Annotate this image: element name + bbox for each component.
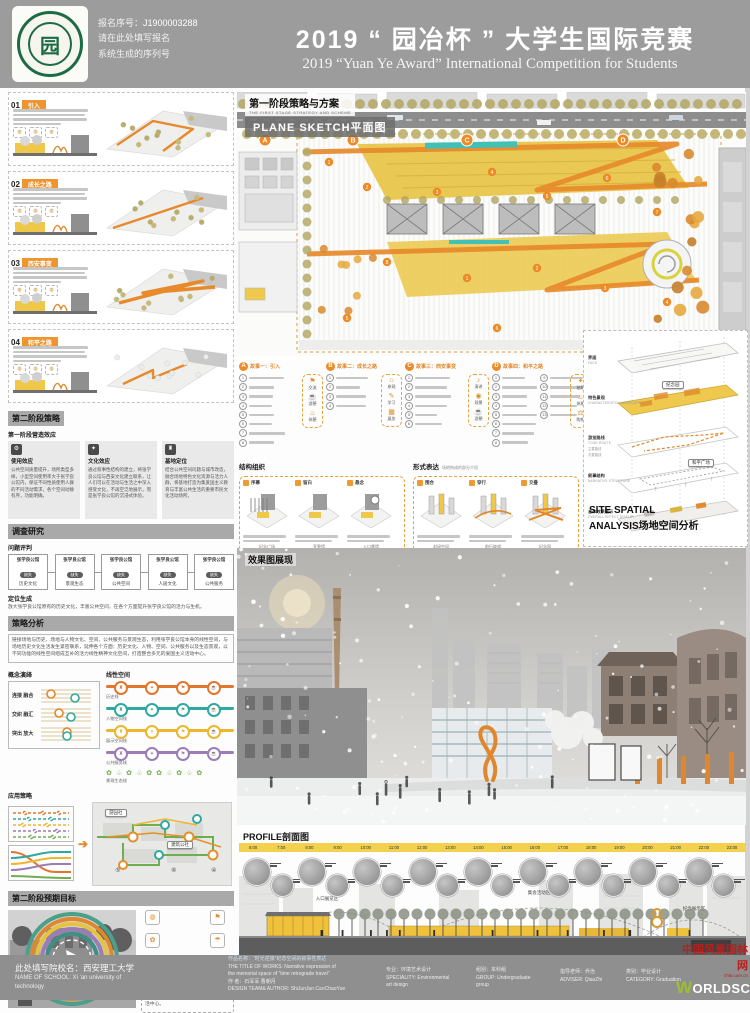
survey-node-aspect: 景观生态	[57, 581, 93, 587]
concept-row: 连接 融合	[12, 688, 96, 704]
story-list-item: 6	[239, 420, 285, 428]
icon-label: 学习	[383, 400, 400, 406]
effect-card: ♜基地定位结合公共空间问题与城市改造，融合场地特色文化资源与活力人群，将基地打造…	[162, 441, 234, 519]
logo-emblem-icon: 园	[17, 11, 83, 77]
svg-text:B: B	[350, 137, 355, 144]
icon-label: 参观	[383, 384, 400, 390]
card-text: 通过叙事性结构的建立，将张学良公馆与西安文化建立联系，让人们可以在活动与生活之中…	[88, 467, 154, 500]
activity-photo	[602, 874, 625, 897]
school-name-en2: technology	[15, 983, 215, 992]
survey-node: 张学良公馆缺失历史文化	[8, 554, 48, 590]
hour-tick: 14:00	[464, 843, 492, 852]
hour-tick: 11:00	[380, 843, 408, 852]
visit-icon: ⌂	[383, 377, 400, 384]
hour-tick: 20:00	[633, 843, 661, 852]
map-callout-1: 游园社	[105, 809, 127, 817]
story-list-item: 2	[239, 383, 285, 391]
card-title: 使用效应	[11, 457, 77, 465]
linear-block: 线性空间 ♜✦⚑☕历史线♜✦⚑☕人物空间线♜✦⚑☕展示空间线♜✦⚑☕公共服务线✿…	[106, 666, 234, 787]
specialty-en2: art design	[386, 982, 472, 990]
activity-photo	[629, 858, 657, 886]
perspective-render	[237, 548, 746, 825]
activity-photo	[657, 874, 680, 897]
story-list-item: 1	[239, 374, 285, 382]
survey-bar: 调查研究	[8, 524, 234, 539]
svg-text:4: 4	[666, 300, 669, 306]
poster-subtitle: 2019 “Yuan Ye Award” International Compe…	[240, 56, 740, 73]
line-node-icon: ☕	[207, 703, 221, 717]
strategy-text: 链接场地与历史、场地与人物文化、空间、公共服务与景观生态，利用张学良公馆本身的线…	[12, 638, 230, 659]
profile-photo-row	[239, 856, 746, 908]
form-box: 围合封闭空间	[417, 480, 465, 550]
activity-photo	[547, 874, 570, 897]
activity-label	[380, 862, 391, 868]
plane-sketch-chip: PLANE SKETCH平面图	[245, 117, 395, 137]
linear-lines: ♜✦⚑☕历史线♜✦⚑☕人物空间线♜✦⚑☕展示空间线♜✦⚑☕公共服务线✿♧✿♧✿✿…	[106, 681, 234, 784]
survey-node-aspect: 公共服务	[196, 581, 232, 587]
activity-photo	[271, 874, 294, 897]
svg-text:1: 1	[466, 276, 469, 282]
header-band: 园 报名序号：J1900003288 请在此处填写报名 系统生成的序列号 201…	[0, 0, 750, 88]
story-list-A: A故事一：引入12345678⚑交流☕游憩♨休憩	[239, 362, 323, 454]
hour-tick: 21:00	[662, 843, 690, 852]
concept-rows: 连接 融合交织 融汇突出 放大	[8, 681, 100, 749]
story-list-item: 1	[326, 374, 368, 382]
story-list-item: 1	[492, 374, 537, 382]
footer-band: 此处填写院校名：西安理工大学 NAME OF SCHOOL: Xi 'an un…	[0, 955, 750, 1000]
specialty-cn: 专业：环境艺术设计	[386, 967, 472, 975]
layer-label-4: 叙事结构NARRATIVE STRUCTURE	[588, 473, 630, 484]
plant-icon: ✿	[145, 933, 160, 948]
line-node-icon: ♜	[114, 703, 128, 717]
activity-photo	[712, 874, 735, 897]
line-node-icon: ⚑	[176, 681, 190, 695]
story-list-item: 8	[492, 439, 537, 447]
survey-node: 张学良公馆缺失人居文化	[148, 554, 188, 590]
chla-logo: 中国风景园林网	[676, 941, 748, 973]
specialty-en1: SPECIALITY: Environmental	[386, 975, 472, 983]
survey-node-tag: 缺失	[113, 572, 129, 578]
work-title-en2: the memorial space of “time retrograde t…	[228, 971, 378, 979]
serial-number: J1900003288	[143, 18, 198, 28]
apply-sub: 应用策略	[8, 791, 234, 800]
story-panel-03: 03西安事变◍◍◍	[8, 250, 234, 324]
story-list-item: 4	[326, 402, 368, 410]
story-icon-box: ⚑交流☕游憩♨休憩	[302, 374, 323, 428]
svg-text:↑: ↑	[710, 476, 714, 483]
svg-text:3: 3	[604, 286, 607, 292]
render-svg	[237, 548, 746, 825]
positioning-sub: 定位生成	[8, 594, 234, 603]
activity-photo	[685, 858, 713, 886]
survey-node: 张学良公馆缺失景观生态	[55, 554, 95, 590]
hour-tick: 9:00	[324, 843, 352, 852]
card-text: 结合公共空间问题与城市改造，融合场地特色文化资源与活力人群，将基地打造为集爱国主…	[165, 467, 231, 500]
hour-tick: 7:00	[267, 843, 295, 852]
story-list-item: 8	[239, 439, 285, 447]
stroll-icon: ☕	[304, 393, 321, 401]
culture-icon: ✦	[88, 444, 99, 455]
story-list-item: 6	[492, 420, 537, 428]
footer-work: 作品名称：“时光逆旅”纪念空间的叙事性表达 THE TITLE OF WORKS…	[228, 956, 378, 994]
icon-label: 游憩	[470, 416, 487, 422]
activity-photo	[519, 858, 547, 886]
story-list-item: 2	[326, 383, 368, 391]
author-en: DESIGN TEAM& AUTHOR: ShiJunJun CaoChaoYu…	[228, 986, 378, 994]
survey-flow: 张学良公馆缺失历史文化张学良公馆缺失景观生态张学良公馆缺失公共空间张学良公馆缺失…	[8, 554, 234, 590]
line-node-icon: ♜	[114, 725, 128, 739]
concept-label: 突出 放大	[12, 730, 38, 737]
study-icon: ✎	[383, 392, 400, 400]
hour-tick: 12:00	[408, 843, 436, 852]
svg-text:↑: ↑	[654, 486, 658, 493]
line-node-icon: ☕	[207, 681, 221, 695]
eco-line: ✿♧✿♧✿✿♧✿♧✿	[106, 769, 234, 777]
story-panel-axon	[103, 105, 231, 164]
story-list-C: C故事三：西安事变123456♪演讲◉观景☕游憩	[405, 362, 489, 454]
hour-tick: 6:00	[239, 843, 267, 852]
structure-box: 悬念入口景墙	[347, 480, 395, 550]
story-panel-axon	[103, 342, 231, 401]
line-node-icon: ☕	[207, 725, 221, 739]
activity-photo	[409, 858, 437, 886]
activity-label	[491, 862, 502, 868]
apply-map: 游园社 建筑公社 ⑤ ⑥ ④	[92, 802, 232, 886]
card-title: 文化效应	[88, 457, 154, 465]
line-node-icon: ✦	[145, 703, 159, 717]
svg-text:4: 4	[491, 170, 494, 176]
story-panel-02: 02成长之路◍◍◍	[8, 171, 234, 245]
effect-card: ⚙使用效应公共空间质量提升，场所类型多样，小型空间使用率大于张学良公馆内，保证不…	[8, 441, 80, 519]
effect-subhead: 第一阶段营造效应	[8, 430, 234, 439]
arrow-right-icon: ➔	[78, 837, 88, 851]
apply-lines-box	[8, 806, 74, 842]
plan-title-cn: 第一阶段策略与方案	[249, 95, 351, 110]
story-list-item: 5	[405, 411, 451, 419]
flag-icon: ⚑	[210, 910, 225, 925]
svg-text:6: 6	[606, 176, 609, 182]
svg-text:2: 2	[536, 266, 539, 272]
poster-title: 2019 “ 园冶杯 ” 大学生国际竞赛	[260, 20, 730, 56]
story-list-item: 4	[405, 402, 451, 410]
site-analysis-title: SITE SPATIAL ANALYSIS场地空间分析	[589, 503, 699, 535]
competition-logo: 园	[12, 6, 88, 82]
line-node-icon: ⚑	[176, 703, 190, 717]
concept-row: 突出 放大	[12, 726, 96, 742]
story-panel-04: 04和平之路◍◍◍	[8, 329, 234, 403]
form-title: 形式表达	[413, 464, 439, 471]
concept-block: 概念演绎 连接 融合交织 融汇突出 放大	[8, 666, 100, 787]
svg-text:D: D	[620, 137, 625, 144]
activity-label	[325, 862, 336, 868]
serial-line2: 请在此处填写报名	[98, 31, 258, 46]
card-title: 基地定位	[165, 457, 231, 465]
story-list-item: 7	[492, 429, 537, 437]
registration-serial: 报名序号：J1900003288 请在此处填写报名 系统生成的序列号	[98, 16, 258, 62]
survey-node-tag: 缺失	[20, 572, 36, 578]
bell-icon: ☂	[210, 933, 225, 948]
leisure-icon: ☕	[470, 408, 487, 416]
line-node-icon: ♜	[114, 681, 128, 695]
footer-school: 此处填写院校名：西安理工大学 NAME OF SCHOOL: Xi 'an un…	[15, 963, 215, 992]
story-list-item: 4	[492, 402, 537, 410]
effect-card: ✦文化效应通过叙事性结构的建立，将张学良公馆与西安文化建立联系，让人们可以在活动…	[85, 441, 157, 519]
svg-text:2: 2	[366, 185, 369, 191]
school-name-en1: NAME OF SCHOOL: Xi 'an university of	[15, 974, 215, 983]
form-panel: 形式表达场地构成的部分介绍 围合封闭空间穿行前行坡道交叠纪念园	[413, 456, 579, 554]
survey-node-aspect: 历史文化	[10, 581, 46, 587]
story-list-item: 1	[405, 374, 451, 382]
icon-label: 游憩	[304, 401, 321, 407]
activity-photo	[436, 874, 459, 897]
positioning-text: 放大张学良公馆原有的历史文化，丰富公共空间，在各个方面提升张学良公馆的活力与生机…	[8, 605, 234, 612]
svg-text:A: A	[262, 137, 267, 144]
activity-label	[601, 862, 612, 868]
story-list-item: 6	[405, 420, 451, 428]
speech-icon: ♪	[470, 377, 487, 384]
serial-line3: 系统生成的序列号	[98, 47, 258, 62]
story-lists: A故事一：引入12345678⚑交流☕游憩♨休憩B故事二：成长之路1234⌂参观…	[239, 362, 584, 454]
linear-line-label: 景观生态线	[106, 778, 234, 784]
activity-photo	[464, 858, 492, 886]
worldscape-logo: WORLDSCAPE	[676, 978, 748, 998]
story-panels: 01引入◍◍◍02成长之路◍◍◍03西安事变◍◍◍04和平之路◍◍◍	[8, 92, 234, 403]
hour-tick: 23:00	[718, 843, 746, 852]
hour-tick: 19:00	[605, 843, 633, 852]
view-icon: ◉	[470, 392, 487, 400]
story-list-item: 3	[326, 393, 368, 401]
svg-text:7: 7	[656, 210, 659, 216]
story-marker: B	[326, 362, 335, 371]
serial-label: 报名序号：	[98, 18, 143, 28]
form-box: 交叠纪念园	[521, 480, 569, 550]
structure-panel: 结构组织 序幕纪念广场留白宣誓墙悬念入口景墙	[239, 456, 405, 554]
story-marker: A	[239, 362, 248, 371]
site-callout-2: 和平广场	[688, 459, 714, 467]
story-panel-axon	[103, 184, 231, 243]
linear-line: ♜✦⚑☕	[106, 747, 234, 759]
activity-label	[270, 862, 281, 868]
apply-diagrams	[8, 806, 74, 881]
structure-box: 留白宣誓墙	[295, 480, 343, 550]
work-title-cn: 作品名称：“时光逆旅”纪念空间的叙事性表达	[228, 956, 378, 964]
story-panel-axon	[103, 263, 231, 322]
target-bar: 第二阶段预期目标	[8, 891, 234, 906]
structure-box: 序幕纪念广场	[243, 480, 291, 550]
story-list-title: 故事四：和平之路	[503, 363, 543, 370]
svg-text:6: 6	[496, 326, 499, 332]
survey-node-aspect: 人居文化	[150, 581, 186, 587]
hour-tick: 15:00	[493, 843, 521, 852]
hour-tick: 13:00	[436, 843, 464, 852]
footer-logos: 中国风景园林网 chla.com.cn WORLDSCAPE	[676, 941, 748, 998]
activity-photo	[326, 874, 349, 897]
linear-line: ♜✦⚑☕	[106, 681, 234, 693]
concept-row: 交织 融汇	[12, 707, 96, 723]
story-list-item: 3	[405, 393, 451, 401]
map-num-4: ④	[211, 867, 216, 874]
hour-tick: 18:00	[577, 843, 605, 852]
icon-label: 展览	[383, 416, 400, 422]
work-title-en1: THE TITLE OF WORKS: Narrative expression…	[228, 964, 378, 972]
strategy-bar: 策略分析	[8, 616, 234, 631]
story-list-item: 4	[239, 402, 285, 410]
concept-sub: 概念演绎	[8, 670, 100, 679]
survey-sub: 问题评判	[8, 543, 234, 552]
svg-text:5: 5	[346, 316, 349, 322]
svg-text:8: 8	[386, 260, 389, 266]
story-list-B: B故事二：成长之路1234⌂参观✎学习▦展览	[326, 362, 402, 454]
exhibit-icon: ▦	[383, 408, 400, 416]
hour-tick: 22:00	[690, 843, 718, 852]
activity-label	[436, 862, 447, 868]
story-list-item: 2	[492, 383, 537, 391]
activity-photo	[491, 874, 514, 897]
hour-tick: 10:00	[352, 843, 380, 852]
story-list-item: 3	[492, 393, 537, 401]
survey-node-tag: 缺失	[206, 572, 222, 578]
layer-label-2: 特色景观CHARACTERISTIC LANDSCAPE	[588, 395, 641, 406]
group-en1: GROUP: Undergraduate	[476, 975, 554, 983]
icon-label: 观景	[470, 400, 487, 406]
line-node-icon: ⚑	[176, 725, 190, 739]
profile-hours-bar: 6:007:008:009:0010:0011:0012:0013:0014:0…	[239, 843, 746, 852]
story-marker: C	[405, 362, 414, 371]
story-marker: D	[492, 362, 501, 371]
survey-node-aspect: 公共空间	[103, 581, 139, 587]
story-icon-box: ♪演讲◉观景☕游憩	[468, 374, 489, 427]
story-panel-01: 01引入◍◍◍	[8, 92, 234, 166]
story-list-item: 3	[239, 393, 285, 401]
icon-label: 休憩	[304, 417, 321, 423]
apply-weave-box	[8, 845, 74, 881]
svg-text:3: 3	[436, 190, 439, 196]
story-list-item: 5	[492, 411, 537, 419]
render-title: 效果图展现	[245, 553, 296, 566]
site-callout-1: 纪念园	[662, 381, 684, 389]
survey-node-tag: 缺失	[67, 572, 83, 578]
activity-photo	[243, 858, 271, 886]
stage2-header: 第二阶段策略	[8, 411, 64, 426]
svg-text:5: 5	[546, 194, 549, 200]
line-node-icon: ♜	[114, 747, 128, 761]
usage-icon: ⚙	[11, 444, 22, 455]
map-num-6: ⑥	[171, 867, 176, 874]
rest-icon: ♨	[304, 409, 321, 417]
woven-lines-diagram	[9, 846, 73, 880]
linear-line: ♜✦⚑☕	[106, 703, 234, 715]
story-list-item: 5	[239, 411, 285, 419]
adviser-cn: 指导老师：乔治	[560, 969, 624, 977]
story-list-title: 故事一：引入	[250, 363, 280, 370]
survey-node: 张学良公馆缺失公共空间	[101, 554, 141, 590]
concept-label: 交织 融汇	[12, 711, 38, 718]
map-num-5: ⑤	[115, 867, 120, 874]
activity-photo	[574, 858, 602, 886]
hour-tick: 17:00	[549, 843, 577, 852]
story-list-title: 故事二：成长之路	[337, 363, 377, 370]
group-cn: 组别：本科组	[476, 967, 554, 975]
effect-cards: ⚙使用效应公共空间质量提升，场所类型多样，小型空间使用率大于张学良公馆内，保证不…	[8, 441, 234, 519]
svg-text:↑: ↑	[684, 482, 688, 489]
activity-photo	[381, 874, 404, 897]
activity-label	[546, 862, 557, 868]
linear-line: ♜✦⚑☕	[106, 725, 234, 737]
activity-label	[734, 878, 745, 884]
icon-label: 演讲	[470, 384, 487, 390]
line-node-icon: ⚑	[176, 747, 190, 761]
footer-adviser: 指导老师：乔治 ADVISER: QiaoZhi	[560, 969, 624, 984]
dashed-lines-diagram	[9, 807, 73, 841]
story-list-D: D故事四：和平之路12345678910111213✦拍照♨休憩⚖购物	[492, 362, 591, 454]
linear-sub: 线性空间	[106, 670, 234, 679]
profile-title: PROFILE剖面图	[243, 830, 309, 843]
author-cn: 作 者：石军军 曹朝月	[228, 979, 378, 987]
plan-title-chip: 第一阶段策略与方案 THE FIRST STAGE STRATEGY AND S…	[245, 94, 355, 116]
story-list-item: 2	[405, 383, 451, 391]
line-node-icon: ☕	[207, 747, 221, 761]
card-text: 公共空间质量提升，场所类型多样，小型空间使用率大于张学良公馆内，保证不同性质使用…	[11, 467, 77, 500]
icon-label: 交流	[304, 385, 321, 391]
line-node-icon: ✦	[145, 747, 159, 761]
left-column: 01引入◍◍◍02成长之路◍◍◍03西安事变◍◍◍04和平之路◍◍◍ 第二阶段策…	[8, 92, 234, 1013]
story-icon-box: ⌂参观✎学习▦展览	[381, 374, 402, 427]
concept-label: 连接 融合	[12, 692, 38, 699]
story-list-title: 故事三：西安事变	[416, 363, 456, 370]
activity-label	[712, 862, 723, 868]
hour-tick: 16:00	[521, 843, 549, 852]
plan-title-en: THE FIRST STAGE STRATEGY AND SCHEME	[249, 110, 351, 115]
layer-label-1: 界面FACE	[588, 355, 597, 366]
line-node-icon: ✦	[145, 725, 159, 739]
footer-group: 组别：本科组 GROUP: Undergraduate group	[476, 967, 554, 990]
map-callout-2: 建筑公社	[167, 841, 193, 849]
svg-text:1: 1	[328, 160, 331, 166]
activity-photo	[298, 858, 326, 886]
activity-label	[656, 862, 667, 868]
footer-specialty: 专业：环境艺术设计 SPECIALITY: Environmental art …	[386, 967, 472, 990]
site-icon: ♜	[165, 444, 176, 455]
hour-tick: 8:00	[295, 843, 323, 852]
activity-photo	[353, 858, 381, 886]
line-node-icon: ✦	[145, 681, 159, 695]
story-list-item: 7	[239, 429, 285, 437]
svg-text:C: C	[464, 137, 469, 144]
layer-label-3: 游览路线TOUR ROUTE主要路线次要路线	[588, 435, 611, 458]
signal-icon: ◍	[145, 910, 160, 925]
survey-node: 张学良公馆缺失公共服务	[194, 554, 234, 590]
chat-icon: ⚑	[304, 377, 321, 385]
form-box: 穿行前行坡道	[469, 480, 517, 550]
strategy-box: 链接场地与历史、场地与人物文化、空间、公共服务与景观生态，利用张学良公馆本身的线…	[8, 634, 234, 663]
group-en2: group	[476, 982, 554, 990]
site-analysis-panel: ↑↑↑ 界面FACE 特色景观CHARACTERISTIC LANDSCAPE …	[583, 330, 748, 547]
school-name-cn: 此处填写院校名：西安理工大学	[15, 963, 215, 974]
survey-node-tag: 缺失	[160, 572, 176, 578]
form-note: 场地构成的部分介绍	[442, 465, 478, 470]
adviser-en: ADVISER: QiaoZhi	[560, 977, 624, 985]
structure-title: 结构组织	[239, 464, 265, 471]
apply-row: ➔ 游园社	[8, 802, 234, 886]
